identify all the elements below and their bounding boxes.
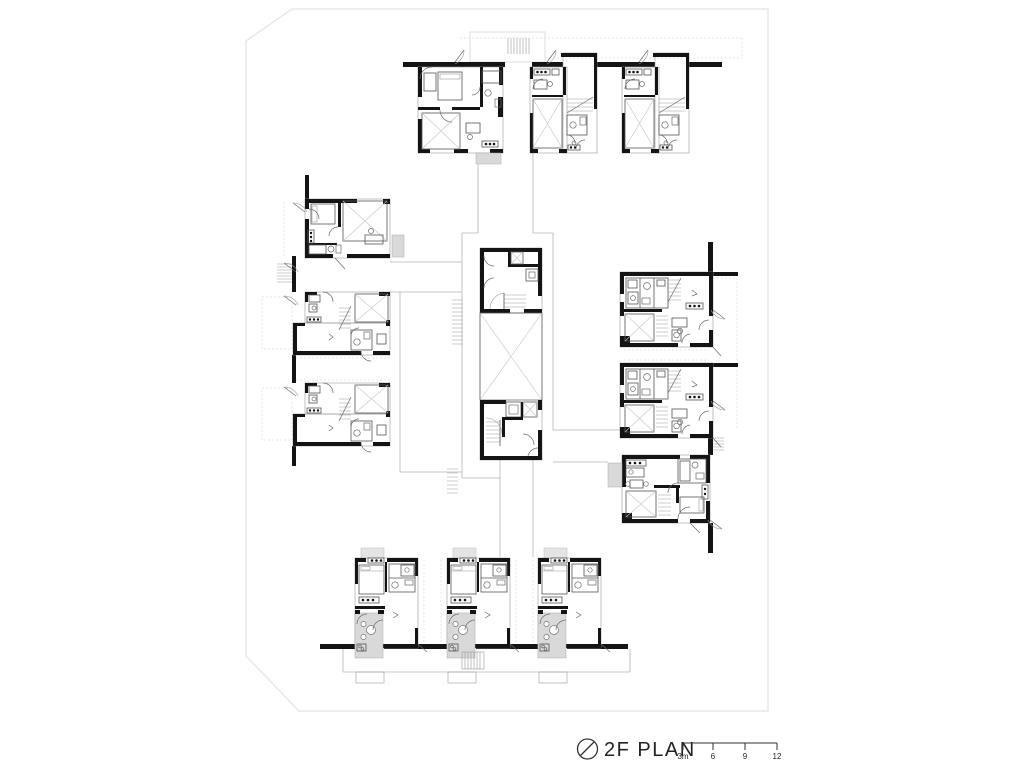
unit-west-3 bbox=[293, 383, 390, 452]
unit-east-3 bbox=[622, 455, 710, 533]
unit-south-1 bbox=[355, 548, 427, 658]
floor-plan-page: 2F PLAN 3m 6 9 12 bbox=[0, 0, 1024, 768]
legend: 2F PLAN 3m 6 9 12 bbox=[578, 739, 782, 761]
core-void bbox=[480, 313, 542, 400]
floor-plan-drawing: 2F PLAN 3m 6 9 12 bbox=[0, 0, 1024, 768]
core-lower-stair-room bbox=[480, 400, 542, 460]
unit-south-2 bbox=[447, 548, 519, 658]
scale-label-3m: 3m bbox=[677, 752, 688, 761]
unit-west-1 bbox=[305, 199, 390, 269]
unit-east-1 bbox=[620, 272, 721, 356]
north-indicator-icon bbox=[578, 739, 598, 759]
south-balcony-band bbox=[343, 649, 630, 683]
corridors bbox=[390, 153, 620, 557]
scale-label-6: 6 bbox=[711, 752, 716, 761]
south-wing-units bbox=[320, 548, 630, 683]
north-wing-units bbox=[403, 53, 722, 164]
scale-label-9: 9 bbox=[743, 752, 748, 761]
unit-west-2 bbox=[293, 292, 390, 361]
setback-lines bbox=[262, 38, 742, 644]
west-wing-units bbox=[292, 175, 404, 466]
unit-north-3 bbox=[622, 53, 689, 153]
unit-south-3 bbox=[538, 548, 610, 658]
scale-label-12: 12 bbox=[773, 752, 782, 761]
circulation-core bbox=[480, 248, 542, 460]
unit-north-1 bbox=[418, 67, 503, 153]
unit-east-2 bbox=[620, 363, 721, 447]
unit-north-2 bbox=[530, 53, 597, 153]
core-upper-stair-room bbox=[480, 248, 542, 313]
east-wing-units bbox=[608, 242, 738, 553]
